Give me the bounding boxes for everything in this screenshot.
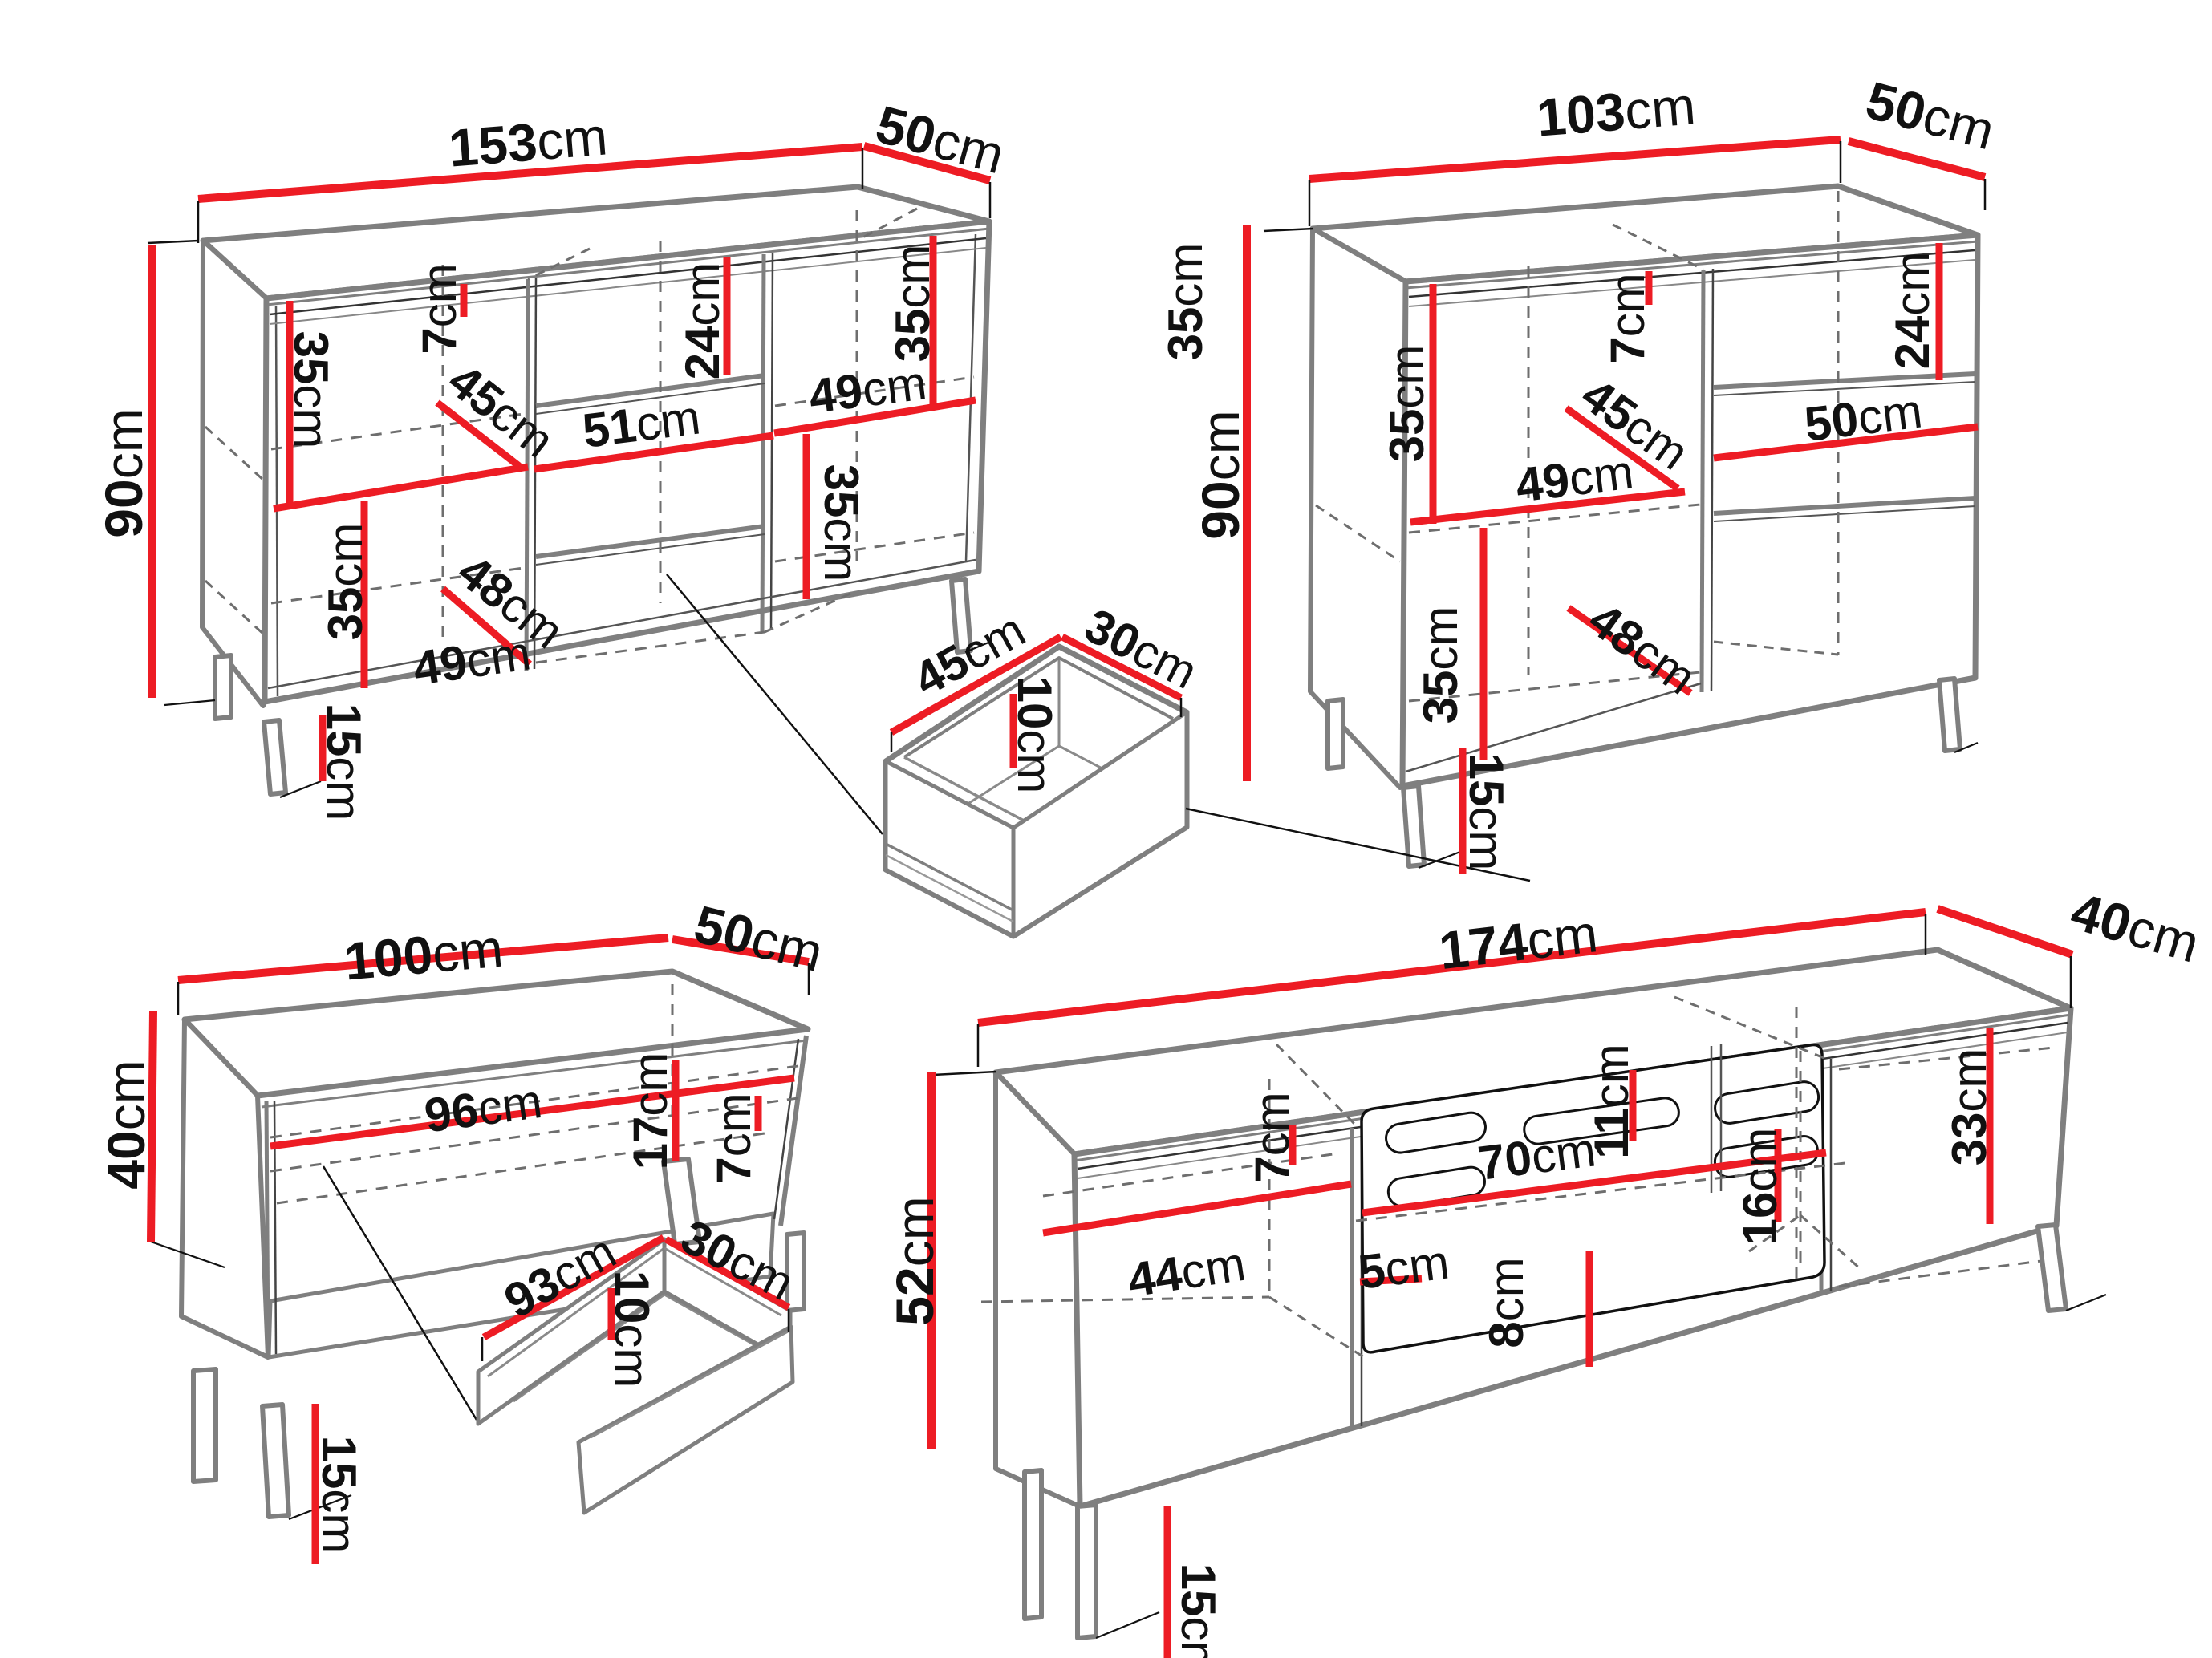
svg-text:40cm: 40cm	[96, 1060, 156, 1189]
svg-text:35cm: 35cm	[1380, 345, 1434, 463]
svg-text:24cm: 24cm	[676, 262, 729, 380]
svg-text:5cm: 5cm	[1355, 1234, 1452, 1299]
svg-text:10cm: 10cm	[605, 1271, 659, 1388]
svg-text:90cm: 90cm	[1191, 410, 1250, 539]
svg-text:15cm: 15cm	[317, 703, 371, 821]
svg-text:35cm: 35cm	[1159, 243, 1212, 361]
svg-text:103cm: 103cm	[1535, 75, 1698, 147]
svg-text:7cm: 7cm	[1245, 1092, 1299, 1182]
svg-text:15cm: 15cm	[1459, 753, 1513, 871]
svg-text:90cm: 90cm	[94, 408, 153, 537]
svg-text:7cm: 7cm	[707, 1092, 761, 1183]
svg-text:33cm: 33cm	[1942, 1048, 1996, 1166]
svg-text:24cm: 24cm	[1885, 252, 1939, 370]
svg-text:153cm: 153cm	[447, 106, 610, 177]
svg-text:17cm: 17cm	[623, 1052, 677, 1170]
svg-text:15cm: 15cm	[312, 1436, 366, 1554]
svg-text:52cm: 52cm	[885, 1196, 944, 1325]
svg-text:7cm: 7cm	[1601, 273, 1654, 363]
svg-text:16cm: 16cm	[1733, 1128, 1787, 1246]
svg-text:7cm: 7cm	[412, 263, 466, 354]
svg-text:35cm: 35cm	[319, 523, 372, 641]
svg-text:35cm: 35cm	[1414, 606, 1467, 724]
svg-text:35cm: 35cm	[814, 464, 868, 582]
svg-text:15cm: 15cm	[1171, 1563, 1225, 1658]
svg-text:35cm: 35cm	[886, 245, 940, 363]
svg-text:8cm: 8cm	[1479, 1257, 1533, 1348]
svg-text:10cm: 10cm	[1008, 676, 1061, 794]
svg-text:35cm: 35cm	[284, 331, 338, 449]
